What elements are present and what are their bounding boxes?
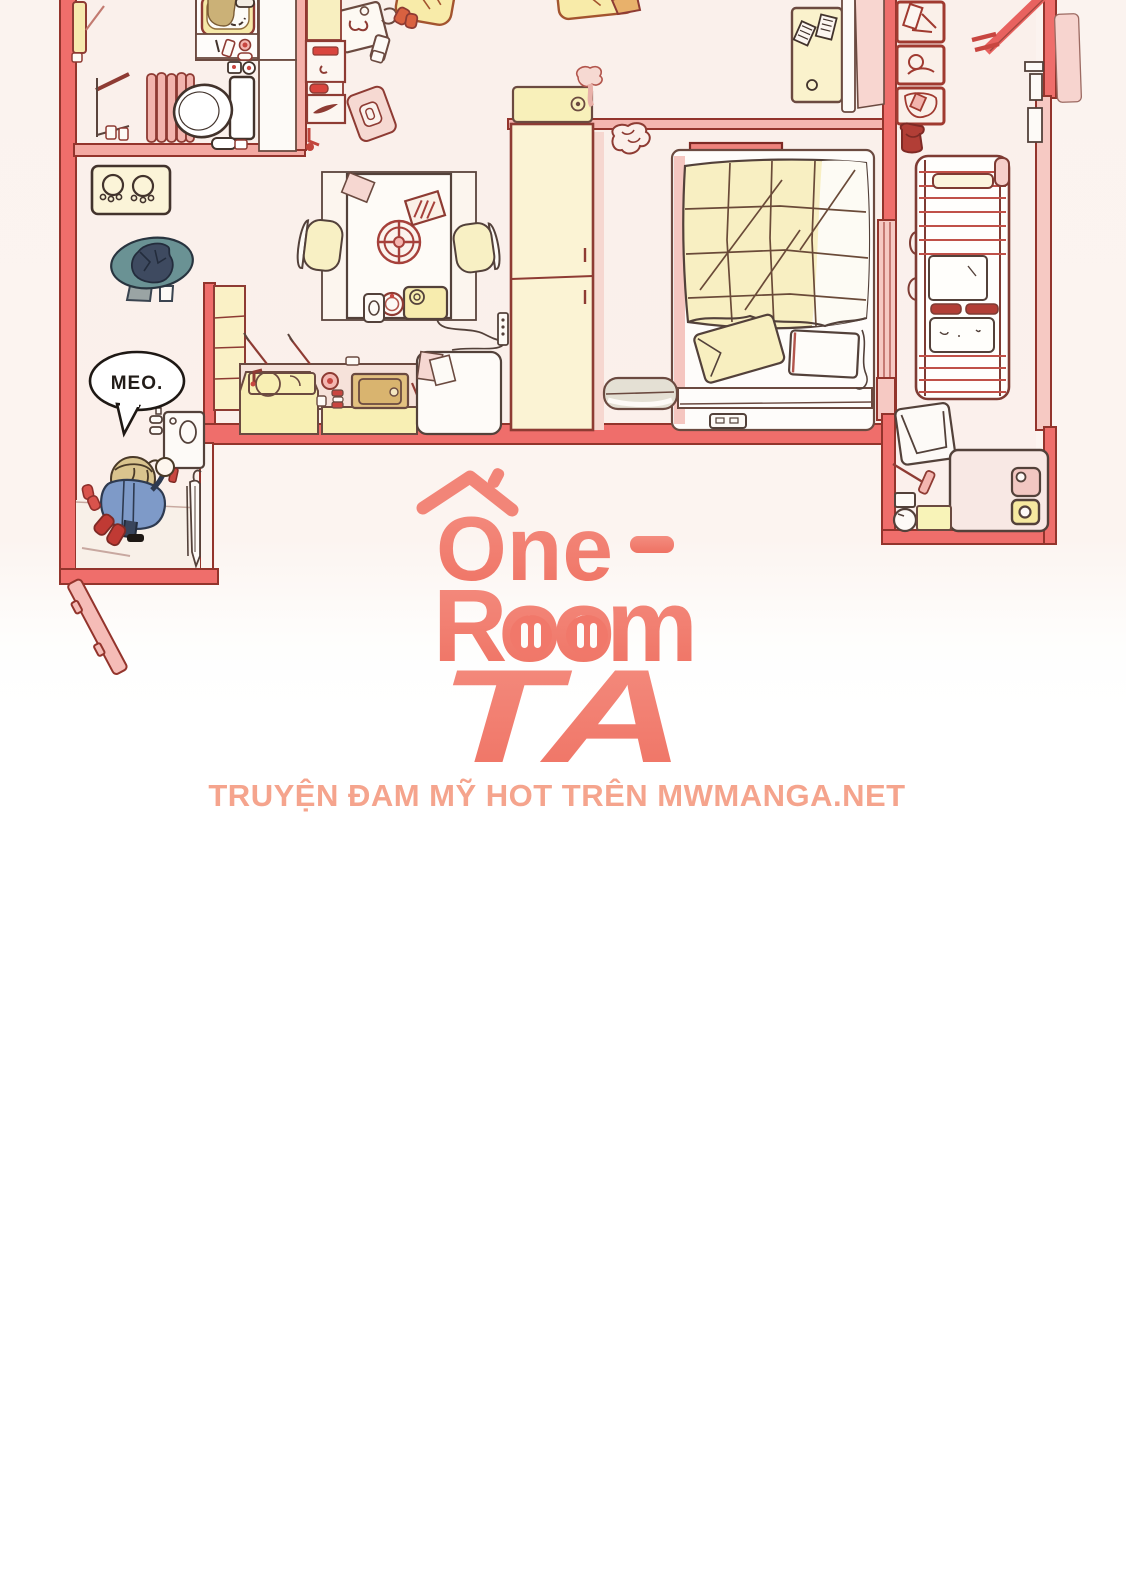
- svg-text:TRUYỆN ĐAM MỸ HOT TRÊN MWMANGA: TRUYỆN ĐAM MỸ HOT TRÊN MWMANGA.NET: [208, 777, 905, 813]
- svg-text:TA: TA: [439, 643, 685, 791]
- svg-text:MEO.: MEO.: [111, 373, 164, 394]
